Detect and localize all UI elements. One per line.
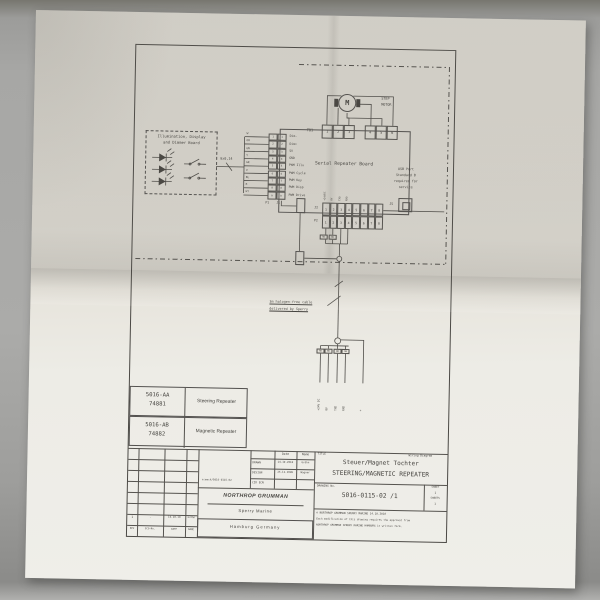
eco-value: - — [137, 516, 163, 520]
j2-label: J2 — [314, 206, 318, 210]
usb-port-icon — [398, 198, 412, 212]
j2-top-label: TXD — [339, 173, 342, 201]
drop-wire-label: + — [359, 385, 363, 411]
design-name: Wagner — [296, 472, 314, 475]
signal-label: Dim+ — [289, 142, 297, 146]
rev-value: 1 — [127, 516, 137, 520]
cable-note-2: delivered by Sperry — [269, 308, 308, 313]
photo-scene: M STEP MOTOR TB1 123 456 Serial Repeater… — [0, 0, 600, 600]
title-label: TITLE — [317, 452, 325, 455]
wire-color-label: W — [247, 132, 249, 135]
doc-type-label: Wiring Diagram — [408, 454, 432, 458]
signal-label: PWM Disp — [289, 186, 304, 190]
date-header: Date — [274, 453, 296, 457]
signal-label: GND — [289, 157, 295, 161]
drop-wire-label: 0V — [325, 385, 329, 411]
j1-pin-cell: 9 — [276, 192, 285, 199]
name-header: Name — [296, 453, 314, 457]
eco-header: ECO-No. — [137, 528, 163, 531]
signal-label: Dim- — [290, 135, 298, 139]
cid-label: CID ECN — [252, 481, 264, 484]
signal-label: PWM Key — [289, 179, 302, 183]
j2-pin-cell: 8 — [375, 204, 383, 217]
drop-wire-tag: BU — [324, 349, 332, 354]
paper-sheet: M STEP MOTOR TB1 123 456 Serial Repeater… — [25, 10, 586, 588]
bundle-wire-tag: RD — [320, 234, 328, 239]
part-description: Magnetic Repeater — [186, 429, 246, 436]
design-label: DESIGN — [252, 471, 262, 474]
drop-wire-tag: RD — [316, 348, 324, 353]
drawn-name: Gröhn — [296, 462, 314, 465]
p1-label: P1 — [265, 201, 269, 205]
p2-pin-cell: 8 — [375, 217, 383, 230]
bundle-wire-tag: BU — [329, 235, 337, 240]
wire-color-label: GY — [246, 190, 249, 193]
drop-wire-label: +24V DC — [317, 384, 321, 410]
motor-brush-left — [334, 99, 338, 107]
cable-gland-box — [295, 251, 304, 265]
motor-symbol: M — [345, 99, 349, 107]
led-switch-symbols — [146, 147, 217, 194]
rev-name-value: Gröhn — [185, 517, 197, 520]
sheets-label: SHEETS — [424, 498, 447, 501]
cable-spec-label: 9x0,14 — [220, 158, 232, 162]
wire-color-label: GR — [246, 161, 249, 164]
wire-color-label: V — [246, 169, 248, 172]
wire-color-label: R — [246, 183, 248, 186]
part-description: Steering Repeater — [186, 399, 246, 406]
p1-pin-cell: 9 — [267, 192, 276, 199]
drawn-date: 14.10.2010 — [274, 462, 296, 465]
drawing-no-label: DRAWING No. — [317, 484, 336, 488]
usb-ref-label: J5 — [389, 203, 393, 207]
signal-label: 5V — [289, 150, 293, 154]
part-number: 5016-AA — [133, 392, 183, 399]
file-ref: e:mech/5016-0115-02 — [202, 479, 232, 483]
motor-brush-right — [356, 99, 360, 107]
j2-top-label: +24VDC — [324, 173, 327, 201]
step-motor-label-1: STEP — [381, 98, 389, 102]
cable-note-1: 3m halogen-free cable — [269, 301, 312, 306]
name-col-header: NAME — [185, 528, 197, 531]
signal-label: PWM Illu — [289, 164, 304, 168]
sheet-no: 1 — [424, 492, 447, 496]
j1-label: J1 — [276, 202, 280, 206]
part-table-row: 5016-AB74882Magnetic Repeater — [129, 416, 248, 448]
item-number: 74881 — [132, 401, 182, 408]
wire-color-label: BL — [246, 176, 249, 179]
wire-color-label: OR — [246, 139, 249, 142]
wire-color-label: GN — [246, 147, 249, 150]
p2-label: P2 — [314, 219, 318, 223]
drop-wire-tag: GN — [341, 349, 349, 354]
drawn-label: DRAWN — [252, 461, 260, 464]
rev-header: REV — [127, 527, 137, 530]
drawing-frame: M STEP MOTOR TB1 123 456 Serial Repeater… — [126, 44, 456, 543]
part-number: 5016-AB — [132, 422, 182, 429]
rev-date-value: 14.10.10 — [163, 517, 185, 520]
drop-wire-tag: WH — [333, 349, 341, 354]
drop-wire-label: TXD — [334, 385, 338, 411]
part-table-row: 5016-AA74881Steering Repeater — [129, 386, 248, 418]
item-number: 74882 — [132, 431, 182, 438]
date-col-header: DATE — [163, 528, 185, 531]
signal-label: PWM Drive — [288, 193, 305, 197]
design-date: 26.11.2009 — [274, 472, 296, 475]
wire-color-label: Y — [246, 154, 248, 157]
sheet-label: SHEET — [424, 487, 447, 490]
step-motor-label-2: MOTOR — [381, 104, 391, 108]
drop-wire-label: RXD — [342, 385, 346, 411]
sheets-no: 1 — [424, 503, 447, 507]
signal-label: PWM Cycle — [289, 172, 306, 176]
inline-component-box — [296, 198, 305, 213]
